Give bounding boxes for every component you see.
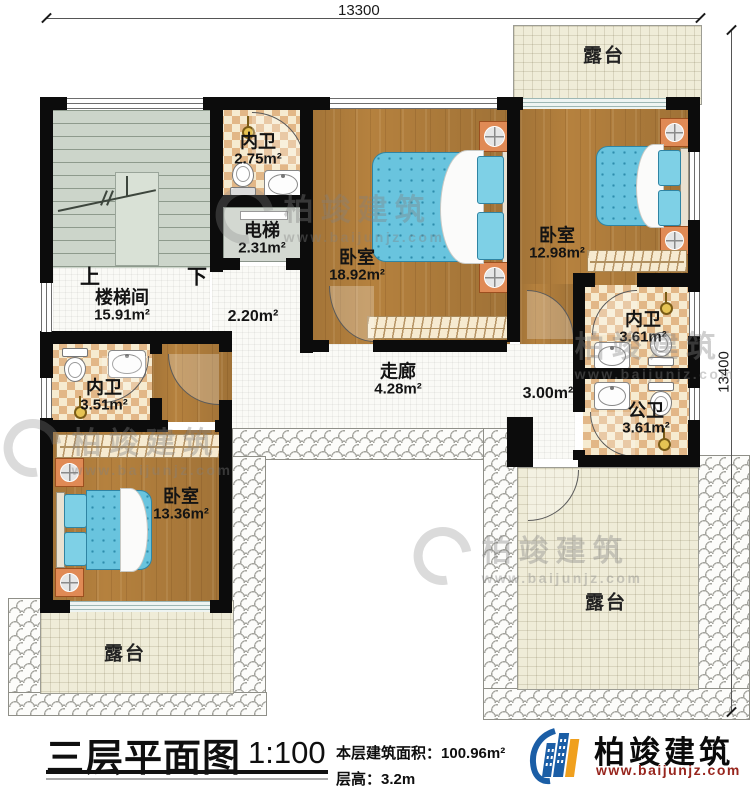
- nightstand: [55, 568, 84, 597]
- bed-pillow: [477, 156, 504, 204]
- wall: [313, 340, 329, 352]
- roof-strip: [483, 428, 519, 692]
- nightstand: [660, 118, 689, 147]
- wall: [286, 258, 313, 270]
- bed-pillow: [477, 212, 504, 260]
- wardrobe: [56, 434, 228, 458]
- window: [689, 152, 700, 220]
- wall: [573, 342, 585, 412]
- wall: [215, 420, 232, 432]
- plan-scale: 1:100: [248, 735, 326, 771]
- wall: [573, 450, 585, 460]
- title-underline-thin: [46, 778, 328, 780]
- company-logo-icon: [527, 727, 587, 785]
- roof-strip: [232, 456, 266, 716]
- room-name: 楼梯间: [94, 288, 150, 308]
- watermark-logo-icon: [402, 516, 483, 597]
- bedroom-left-label: 卧室 13.36m²: [153, 487, 209, 524]
- wall: [210, 258, 240, 270]
- wall: [373, 340, 507, 352]
- stair-arrow: [126, 176, 128, 196]
- wall: [573, 273, 585, 342]
- hall-right-label: 3.00m²: [523, 385, 574, 403]
- wall: [210, 195, 313, 207]
- stair-landing: [115, 172, 159, 266]
- floor-plan-canvas: 13300 13400 露台 露台 露台: [0, 0, 750, 795]
- terrace-bottom-right-label: 露台: [585, 588, 627, 615]
- bedroom-right-label: 卧室 12.98m²: [529, 226, 585, 263]
- elevator-door-slot: [240, 211, 288, 220]
- wall: [637, 273, 700, 287]
- pull-lamp: [658, 438, 671, 451]
- bedroom-master-label: 卧室 18.92m²: [329, 248, 385, 285]
- wardrobe: [367, 316, 509, 339]
- nightstand: [55, 458, 84, 487]
- floor-height-info: 层高：3.2m: [336, 768, 415, 789]
- stair-up-label: 上: [80, 261, 100, 290]
- bed-pillow: [658, 150, 681, 186]
- wall: [507, 417, 533, 467]
- wall: [578, 455, 700, 467]
- wall: [150, 344, 162, 354]
- terrace-glass-door: [523, 98, 666, 109]
- bath-public-label: 公卫 3.61m²: [622, 401, 670, 438]
- wall: [40, 600, 70, 613]
- room-area: 15.91m²: [94, 308, 150, 325]
- stair-down-label: 下: [187, 261, 207, 290]
- window: [689, 388, 700, 420]
- window: [689, 292, 700, 336]
- title-underline: [46, 770, 328, 774]
- wall: [40, 331, 232, 344]
- terrace-bottom-left-label: 露台: [104, 639, 146, 666]
- dimension-top-value: 13300: [338, 2, 380, 19]
- wall: [507, 97, 520, 342]
- wall: [300, 270, 313, 353]
- wall: [210, 97, 223, 272]
- bath-top-label: 内卫 2.75m²: [234, 132, 282, 169]
- dimension-right-value: 13400: [716, 351, 733, 393]
- balcony-glass-door: [70, 601, 210, 612]
- bath-right-label: 内卫 3.61m²: [619, 310, 667, 347]
- floor-area-info: 本层建筑面积：100.96m²: [336, 742, 505, 763]
- wall: [585, 273, 595, 287]
- bath-left-label: 内卫 3.51m²: [80, 378, 128, 415]
- nightstand: [479, 121, 510, 152]
- wall: [40, 97, 53, 283]
- bed-pillow: [64, 494, 87, 528]
- wall: [300, 97, 313, 270]
- roof-strip: [697, 455, 750, 720]
- wall: [51, 420, 168, 432]
- window: [41, 378, 52, 418]
- bed-pillow: [64, 532, 87, 566]
- wall: [40, 418, 53, 613]
- corridor-label: 走廊 4.28m²: [374, 362, 422, 399]
- wall: [688, 336, 700, 388]
- wardrobe: [587, 250, 687, 272]
- company-logo-url: www.baijunjz.com: [596, 762, 741, 778]
- roof-strip: [232, 428, 485, 460]
- hall-small-label: 2.20m²: [228, 308, 279, 326]
- stairwell-label: 楼梯间 15.91m²: [94, 288, 150, 325]
- window: [67, 98, 203, 109]
- wall: [666, 97, 700, 110]
- window: [41, 283, 52, 332]
- roof-strip: [483, 688, 750, 720]
- wall: [219, 331, 232, 352]
- elevator-label: 电梯 2.31m²: [238, 221, 286, 258]
- roof-strip: [8, 692, 267, 716]
- terrace-top-right-label: 露台: [583, 41, 625, 68]
- bed-headboard: [680, 148, 689, 228]
- wall: [688, 110, 700, 152]
- wall: [585, 368, 688, 379]
- corridor-floor: [230, 344, 510, 428]
- nightstand: [479, 262, 510, 293]
- window: [330, 98, 497, 109]
- bed-pillow: [658, 190, 681, 226]
- wall: [150, 398, 162, 422]
